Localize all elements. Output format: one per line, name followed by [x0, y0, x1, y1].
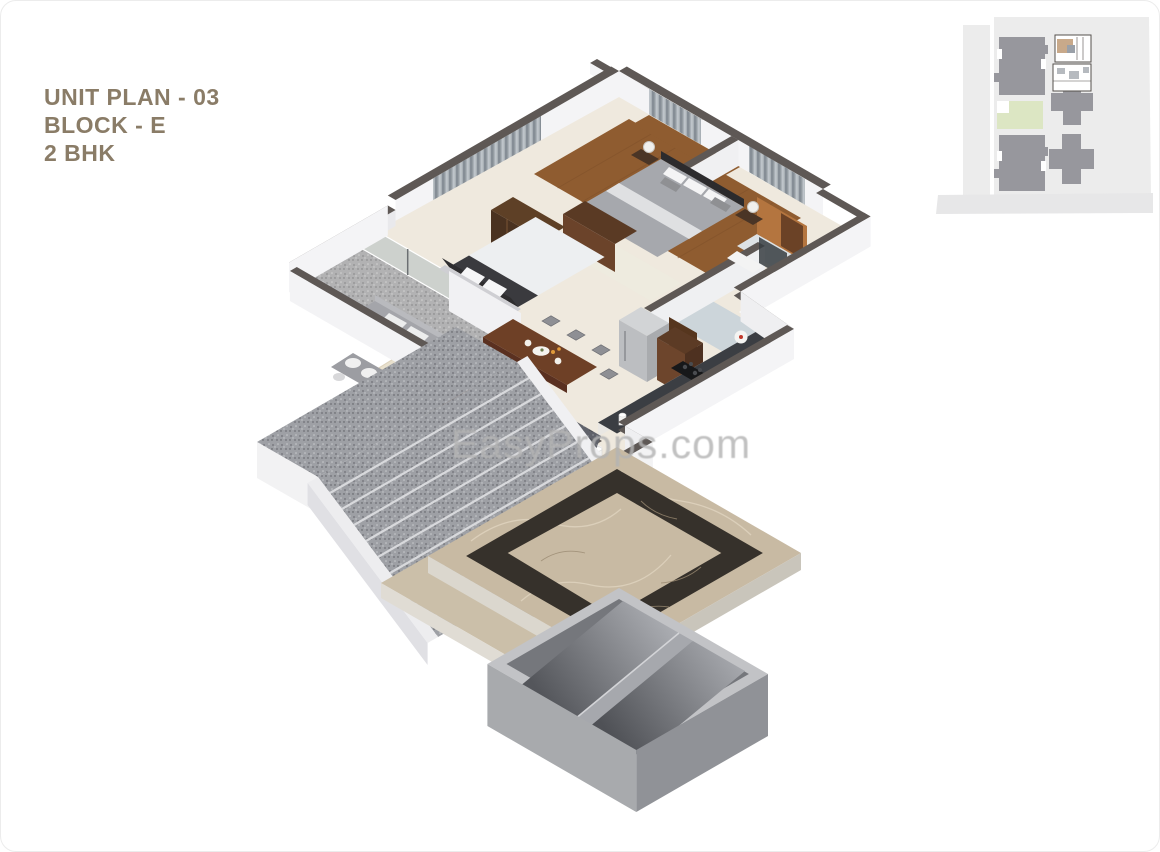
- title-line-block: BLOCK - E: [44, 111, 220, 139]
- table-lamp-icon: [748, 202, 759, 213]
- site-unit-plan-highlighted: [1055, 35, 1091, 62]
- floor-plan-page: UNIT PLAN - 03 BLOCK - E 2 BHK EasyProps…: [0, 0, 1160, 852]
- title-line-bhk: 2 BHK: [44, 139, 220, 167]
- site-key-plan: [936, 17, 1153, 214]
- unit-plan-title: UNIT PLAN - 03 BLOCK - E 2 BHK: [44, 83, 220, 167]
- title-line-unit-plan: UNIT PLAN - 03: [44, 83, 220, 111]
- site-unit-plan: [1053, 64, 1091, 91]
- table-lamp-icon: [644, 142, 655, 153]
